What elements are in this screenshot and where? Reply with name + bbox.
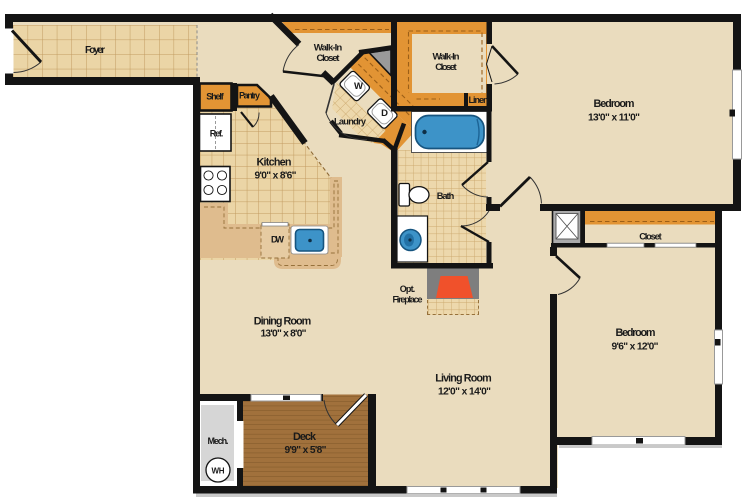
svg-text:Deck: Deck xyxy=(293,431,317,443)
svg-text:Living Room: Living Room xyxy=(435,373,492,385)
svg-text:D: D xyxy=(381,108,388,119)
svg-text:DW: DW xyxy=(271,235,285,245)
svg-text:Bedroom: Bedroom xyxy=(616,327,656,339)
svg-text:Closet: Closet xyxy=(639,232,662,242)
svg-text:Walk-In: Walk-In xyxy=(314,43,343,54)
svg-text:Bath: Bath xyxy=(437,191,455,201)
svg-text:Ref.: Ref. xyxy=(210,129,224,139)
svg-text:Bedroom: Bedroom xyxy=(594,98,635,110)
svg-text:Walk-In: Walk-In xyxy=(433,52,460,63)
svg-text:WH: WH xyxy=(212,467,225,476)
svg-text:Dining Room: Dining Room xyxy=(254,316,312,328)
svg-text:13'0" x 11'0": 13'0" x 11'0" xyxy=(588,113,640,124)
svg-text:12'0" x 14'0": 12'0" x 14'0" xyxy=(438,387,491,398)
svg-text:Closet: Closet xyxy=(317,53,341,64)
svg-text:9'6" x 12'0": 9'6" x 12'0" xyxy=(612,342,659,353)
svg-text:W: W xyxy=(354,81,363,92)
svg-text:Shelf: Shelf xyxy=(206,92,225,102)
svg-text:Foyer: Foyer xyxy=(85,45,105,56)
svg-text:Mech.: Mech. xyxy=(208,436,229,446)
svg-text:Linen: Linen xyxy=(469,95,489,105)
svg-text:Closet: Closet xyxy=(435,62,457,73)
svg-text:13'0" x 8'0": 13'0" x 8'0" xyxy=(261,329,307,340)
svg-text:9'0" x 8'6": 9'0" x 8'6" xyxy=(255,171,297,182)
svg-text:Laundry: Laundry xyxy=(334,117,367,127)
svg-text:Fireplace: Fireplace xyxy=(393,295,423,305)
svg-text:Pantry: Pantry xyxy=(239,91,260,101)
svg-text:Kitchen: Kitchen xyxy=(257,157,292,169)
svg-text:9'9" x 5'8": 9'9" x 5'8" xyxy=(285,445,327,456)
svg-text:Opt.: Opt. xyxy=(400,284,416,294)
